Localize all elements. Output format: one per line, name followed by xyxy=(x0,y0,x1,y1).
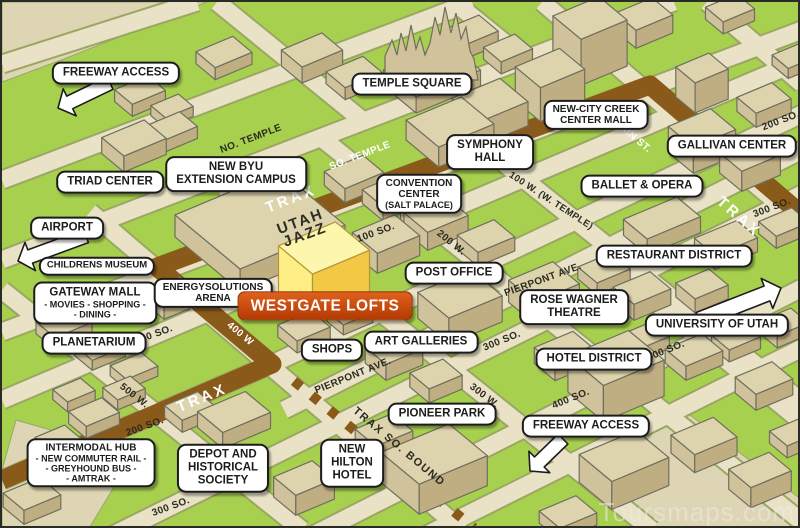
map-label-shops: SHOPS xyxy=(301,339,363,362)
map-label-hotel-district: HOTEL DISTRICT xyxy=(536,348,653,371)
map-label-westgate-lofts: WESTGATE LOFTS xyxy=(238,291,413,320)
map-label-symphony-hall: SYMPHONYHALL xyxy=(446,134,534,170)
map-canvas: NO. TEMPLE SO. TEMPLE TRAX MAIN ST. TRAX… xyxy=(0,0,800,528)
map-label-triad-center: TRIAD CENTER xyxy=(56,171,164,194)
map-label-airport: AIRPORT xyxy=(30,217,104,240)
map-label-new-byu-extension-campus: NEW BYUEXTENSION CAMPUS xyxy=(165,156,307,192)
map-label-freeway-access-se: FREEWAY ACCESS xyxy=(522,415,650,438)
map-label-childrens-museum: CHILDRENS MUSEUM xyxy=(39,257,155,276)
map-label-rose-wagner-theatre: ROSE WAGNERTHEATRE xyxy=(519,289,629,325)
map-label-gateway-mall: GATEWAY MALL- MOVIES - SHOPPING -- DININ… xyxy=(33,281,157,324)
map-label-university-of-utah: UNIVERSITY OF UTAH xyxy=(645,314,789,337)
map-label-post-office: POST OFFICE xyxy=(405,262,504,285)
map-label-convention-center: CONVENTIONCENTER(SALT PALACE) xyxy=(376,174,462,214)
map-label-restaurant-district: RESTAURANT DISTRICT xyxy=(596,245,753,268)
map-label-pioneer-park: PIONEER PARK xyxy=(388,403,497,426)
map-label-art-galleries: ART GALLERIES xyxy=(364,331,479,354)
map-label-new-city-creek-center-mall: NEW-CITY CREEKCENTER MALL xyxy=(544,100,649,130)
map-label-intermodal-hub: INTERMODAL HUB- NEW COMMUTER RAIL -- GRE… xyxy=(27,438,156,487)
map-watermark: Toursmaps.com xyxy=(599,497,796,528)
map-label-temple-square: TEMPLE SQUARE xyxy=(351,73,472,96)
map-label-gallivan-center: GALLIVAN CENTER xyxy=(667,135,797,158)
map-label-depot-historical-society: DEPOT ANDHISTORICALSOCIETY xyxy=(177,444,269,493)
map-label-planetarium: PLANETARIUM xyxy=(42,332,147,355)
map-label-ballet-opera: BALLET & OPERA xyxy=(581,175,704,198)
map-label-new-hilton-hotel: NEWHILTONHOTEL xyxy=(320,439,384,488)
map-label-freeway-access-nw: FREEWAY ACCESS xyxy=(52,62,180,85)
